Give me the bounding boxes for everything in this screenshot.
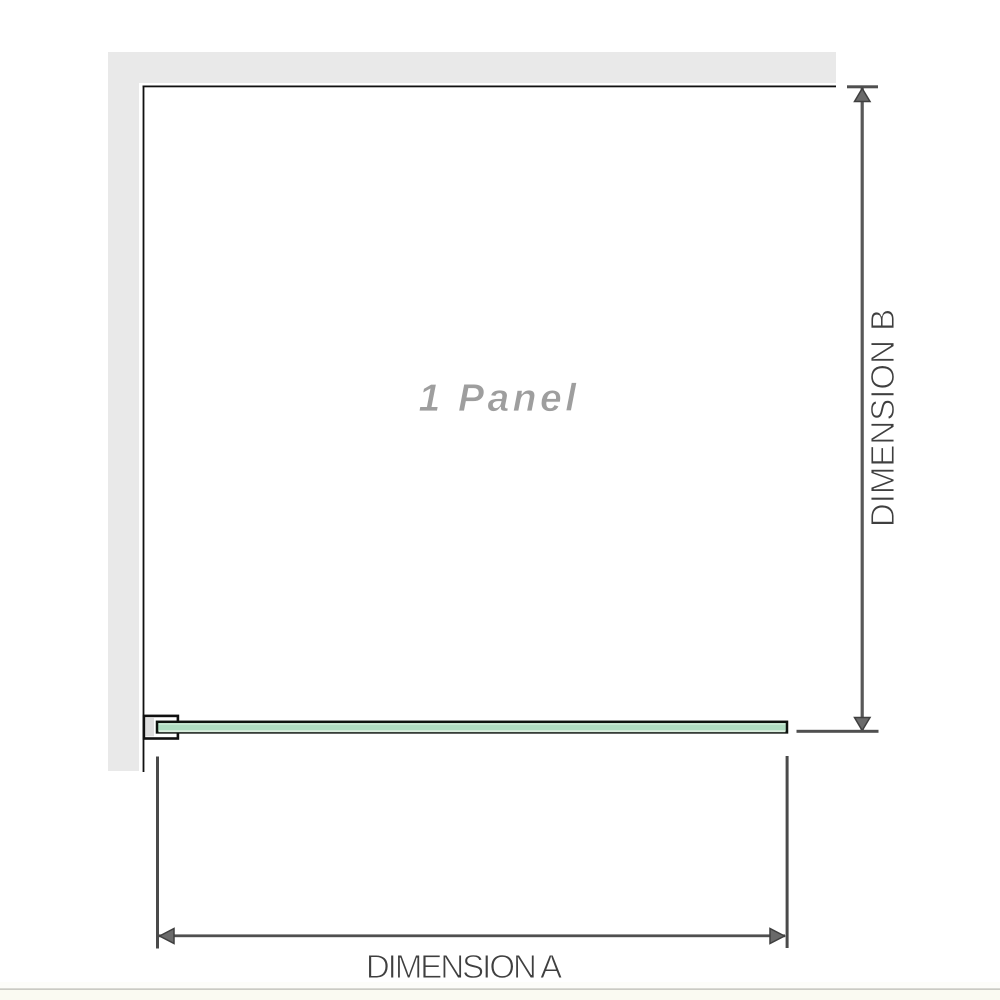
svg-text:DIMENSION B: DIMENSION B — [864, 309, 901, 527]
svg-text:DIMENSION A: DIMENSION A — [366, 948, 562, 985]
svg-text:1 Panel: 1 Panel — [418, 377, 579, 420]
